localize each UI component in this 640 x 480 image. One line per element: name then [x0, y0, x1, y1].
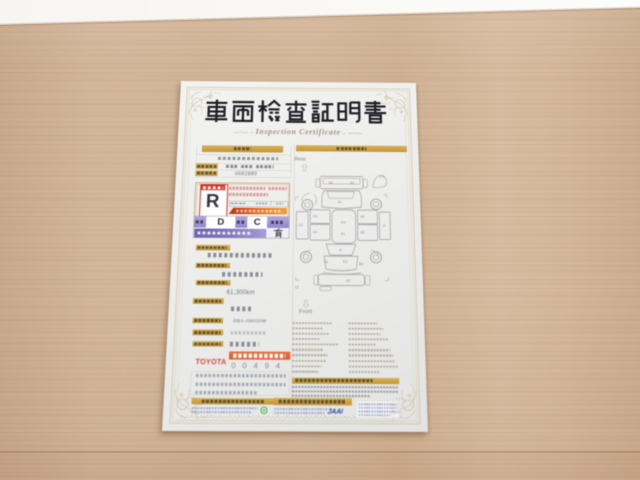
svg-text:B3: B3: [359, 262, 364, 266]
svg-text:D1: D1: [313, 214, 318, 218]
svg-text:A1: A1: [338, 200, 342, 204]
svg-text:B2: B2: [361, 230, 366, 234]
svg-text:B1: B1: [350, 181, 354, 185]
svg-text:A2: A2: [360, 215, 365, 219]
svg-text:G4: G4: [341, 220, 346, 224]
svg-text:E: E: [383, 224, 385, 228]
svg-text:6: 6: [339, 248, 341, 252]
svg-text:13: 13: [295, 285, 299, 290]
svg-text:P1: P1: [341, 232, 346, 236]
svg-text:E3: E3: [343, 259, 348, 263]
svg-text:1 2: 1 2: [379, 175, 384, 179]
svg-text:54: 54: [324, 260, 328, 264]
svg-text:C0: C0: [298, 223, 303, 227]
svg-text:46: 46: [329, 181, 333, 185]
svg-text:A4: A4: [313, 230, 318, 234]
svg-text:A7: A7: [346, 279, 351, 284]
